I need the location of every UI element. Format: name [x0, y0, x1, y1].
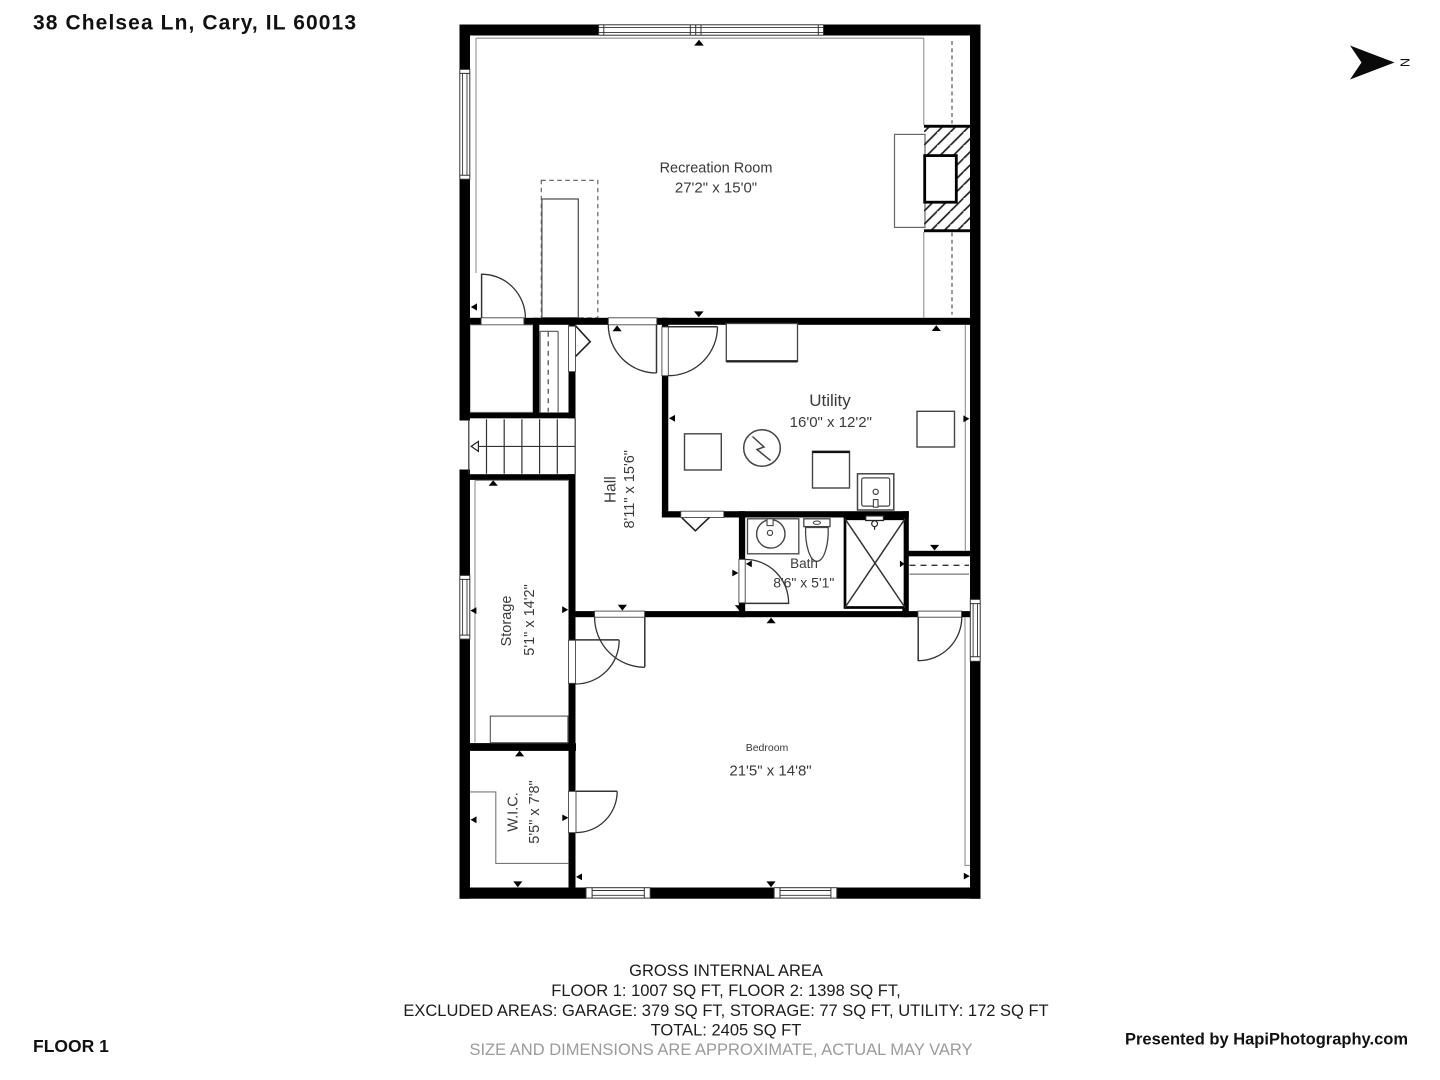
svg-text:21'5" x 14'8": 21'5" x 14'8": [729, 763, 811, 780]
svg-text:Bath: Bath: [790, 556, 818, 571]
svg-text:Hall: Hall: [602, 476, 619, 503]
svg-text:16'0" x 12'2": 16'0" x 12'2": [790, 414, 872, 431]
svg-text:W.I.C.: W.I.C.: [506, 792, 522, 831]
svg-text:5'1" x 14'2": 5'1" x 14'2": [522, 584, 538, 655]
svg-text:Bedroom: Bedroom: [746, 742, 789, 754]
svg-text:Recreation Room: Recreation Room: [660, 161, 773, 177]
svg-text:SIZE AND DIMENSIONS ARE APPROX: SIZE AND DIMENSIONS ARE APPROXIMATE, ACT…: [469, 1041, 972, 1059]
svg-text:FLOOR 1: 1007 SQ FT, FLOOR 2:: FLOOR 1: 1007 SQ FT, FLOOR 2: 1398 SQ FT…: [551, 982, 900, 1000]
svg-text:TOTAL: 2405 SQ FT: TOTAL: 2405 SQ FT: [651, 1022, 802, 1040]
svg-text:N: N: [1398, 58, 1412, 67]
svg-text:Utility: Utility: [809, 391, 851, 410]
svg-text:FLOOR 1: FLOOR 1: [33, 1036, 109, 1056]
svg-text:38 Chelsea Ln, Cary, IL 60013: 38 Chelsea Ln, Cary, IL 60013: [33, 12, 357, 35]
svg-text:8'6" x 5'1": 8'6" x 5'1": [773, 575, 834, 591]
svg-text:GROSS INTERNAL AREA: GROSS INTERNAL AREA: [629, 962, 823, 980]
svg-text:EXCLUDED AREAS: GARAGE: 379 SQ: EXCLUDED AREAS: GARAGE: 379 SQ FT, STORA…: [403, 1002, 1048, 1020]
svg-text:Storage: Storage: [499, 596, 515, 647]
svg-text:5'5" x 7'8": 5'5" x 7'8": [527, 780, 543, 843]
svg-text:Presented by HapiPhotography.c: Presented by HapiPhotography.com: [1125, 1031, 1408, 1049]
svg-text:8'11" x 15'6": 8'11" x 15'6": [622, 450, 638, 528]
svg-text:27'2" x 15'0": 27'2" x 15'0": [675, 180, 757, 197]
